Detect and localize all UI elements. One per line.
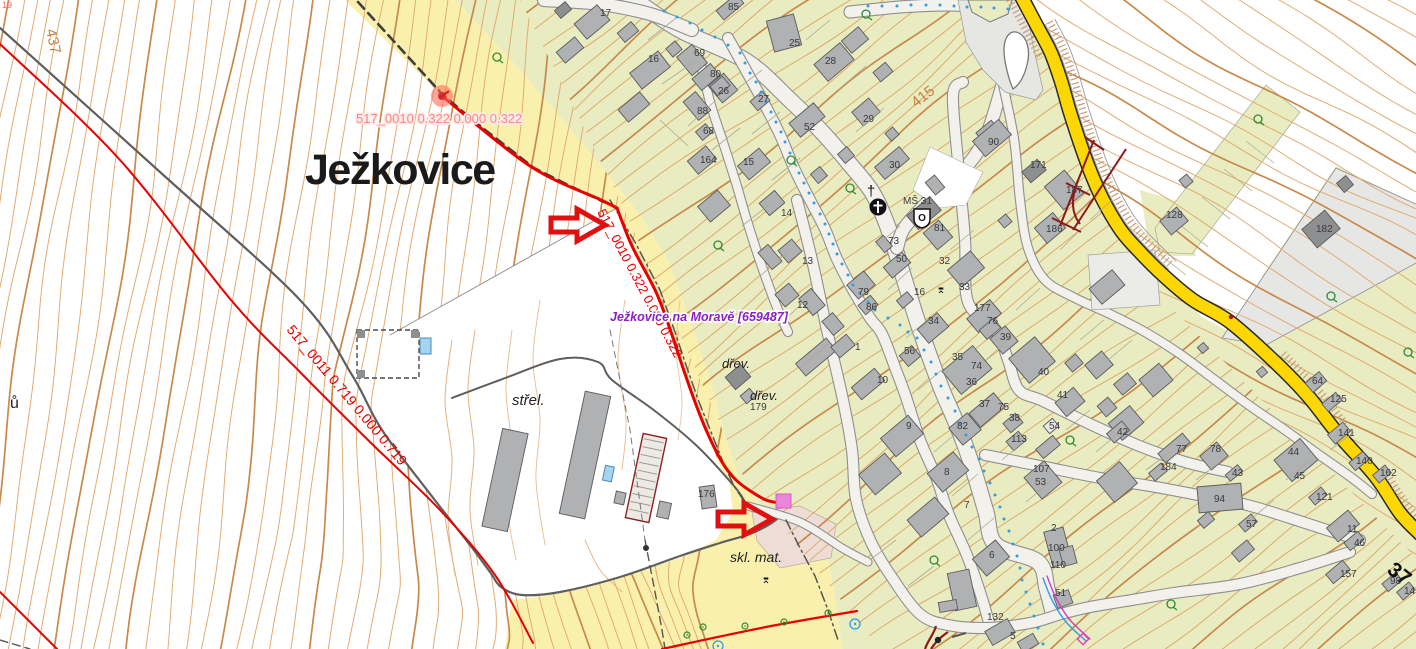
svg-text:⌆: ⌆ [936, 284, 945, 296]
svg-text:88: 88 [697, 106, 709, 117]
svg-text:80: 80 [710, 69, 722, 80]
svg-text:43: 43 [1232, 468, 1244, 479]
svg-text:78: 78 [1210, 444, 1222, 455]
svg-text:skl. mat.: skl. mat. [730, 549, 782, 565]
svg-text:110: 110 [1050, 560, 1066, 571]
svg-text:35: 35 [952, 352, 964, 363]
svg-text:179: 179 [750, 402, 767, 413]
svg-text:39: 39 [1000, 332, 1012, 343]
svg-text:132: 132 [987, 612, 1004, 623]
svg-text:29: 29 [863, 114, 875, 125]
svg-text:176: 176 [698, 489, 715, 500]
svg-text:186: 186 [1046, 224, 1063, 235]
svg-text:14: 14 [781, 208, 793, 219]
svg-text:33: 33 [959, 282, 971, 293]
svg-text:11: 11 [1347, 524, 1358, 535]
svg-text:7: 7 [964, 500, 970, 511]
svg-text:25: 25 [789, 38, 801, 49]
svg-text:56: 56 [904, 346, 916, 357]
svg-text:46: 46 [1354, 538, 1366, 549]
svg-text:26: 26 [718, 86, 730, 97]
svg-text:113: 113 [1011, 434, 1027, 445]
svg-text:100: 100 [1048, 543, 1065, 554]
svg-text:77: 77 [1176, 444, 1188, 455]
svg-text:dřev.: dřev. [750, 388, 778, 403]
svg-text:74: 74 [971, 361, 983, 372]
svg-text:Ježkovice na Moravě [659487]: Ježkovice na Moravě [659487] [610, 310, 789, 324]
svg-text:79: 79 [858, 287, 870, 298]
svg-text:32: 32 [939, 256, 951, 267]
svg-text:85: 85 [728, 2, 740, 13]
svg-text:⌆: ⌆ [761, 574, 770, 586]
svg-text:Ježkovice: Ježkovice [305, 146, 495, 194]
svg-text:121: 121 [1316, 492, 1333, 503]
svg-text:17: 17 [600, 8, 612, 19]
svg-text:54: 54 [1049, 421, 1061, 432]
svg-text:125: 125 [1330, 394, 1347, 405]
svg-text:86: 86 [866, 302, 878, 313]
svg-text:187: 187 [1066, 185, 1083, 196]
svg-text:57: 57 [1246, 519, 1258, 530]
svg-text:140: 140 [1356, 456, 1373, 467]
svg-text:44: 44 [1288, 447, 1300, 458]
svg-text:64: 64 [1312, 376, 1324, 387]
svg-text:16: 16 [648, 54, 660, 65]
svg-text:69: 69 [694, 48, 706, 59]
svg-text:40: 40 [1038, 367, 1050, 378]
svg-text:141: 141 [1338, 428, 1355, 439]
svg-text:2: 2 [1051, 523, 1057, 534]
svg-text:27: 27 [758, 94, 770, 105]
svg-text:162: 162 [1380, 468, 1397, 479]
svg-text:15: 15 [743, 157, 755, 168]
svg-text:36: 36 [966, 377, 978, 388]
svg-text:157: 157 [1340, 569, 1357, 580]
svg-text:13: 13 [802, 256, 814, 267]
svg-text:dřev.: dřev. [722, 356, 750, 371]
svg-text:75: 75 [998, 402, 1010, 413]
svg-text:34: 34 [928, 316, 940, 327]
svg-text:68: 68 [703, 126, 715, 137]
svg-text:16: 16 [914, 287, 926, 298]
svg-text:171: 171 [1030, 160, 1047, 171]
svg-text:182: 182 [1316, 224, 1333, 235]
svg-text:5: 5 [1010, 631, 1016, 642]
svg-text:ů: ů [10, 394, 19, 412]
svg-text:76: 76 [987, 316, 999, 327]
svg-text:MŠ 31: MŠ 31 [903, 194, 932, 207]
svg-text:107: 107 [1033, 464, 1050, 475]
svg-text:90: 90 [988, 137, 1000, 148]
svg-text:střel.: střel. [512, 392, 545, 409]
svg-text:19: 19 [2, 0, 12, 10]
svg-text:12: 12 [797, 300, 809, 311]
svg-text:6: 6 [989, 550, 995, 561]
svg-text:94: 94 [1214, 494, 1226, 505]
svg-text:†: † [867, 183, 875, 200]
svg-text:164: 164 [700, 155, 717, 166]
svg-text:177: 177 [974, 303, 991, 314]
svg-text:52: 52 [804, 122, 816, 133]
svg-text:37: 37 [979, 399, 991, 410]
svg-text:8: 8 [944, 467, 950, 478]
svg-text:28: 28 [825, 56, 837, 67]
svg-text:147: 147 [1404, 586, 1416, 597]
svg-text:O: O [918, 213, 926, 224]
svg-text:9: 9 [906, 421, 912, 432]
svg-text:82: 82 [957, 421, 969, 432]
svg-text:1: 1 [855, 342, 861, 353]
svg-text:41: 41 [1057, 390, 1069, 401]
svg-text:53: 53 [1035, 477, 1047, 488]
svg-text:51: 51 [1055, 588, 1067, 599]
svg-text:98: 98 [1390, 576, 1402, 587]
svg-text:184: 184 [1160, 462, 1177, 473]
svg-text:517_0010 0.322 0.000 0.322: 517_0010 0.322 0.000 0.322 [356, 111, 522, 126]
svg-text:30: 30 [889, 160, 901, 171]
svg-text:45: 45 [1294, 471, 1306, 482]
svg-text:50: 50 [896, 254, 908, 265]
svg-text:10: 10 [877, 375, 889, 386]
svg-text:128: 128 [1166, 210, 1183, 221]
svg-text:73: 73 [888, 236, 900, 247]
svg-text:38: 38 [1009, 413, 1021, 424]
svg-text:81: 81 [934, 223, 946, 234]
svg-text:42: 42 [1117, 427, 1129, 438]
